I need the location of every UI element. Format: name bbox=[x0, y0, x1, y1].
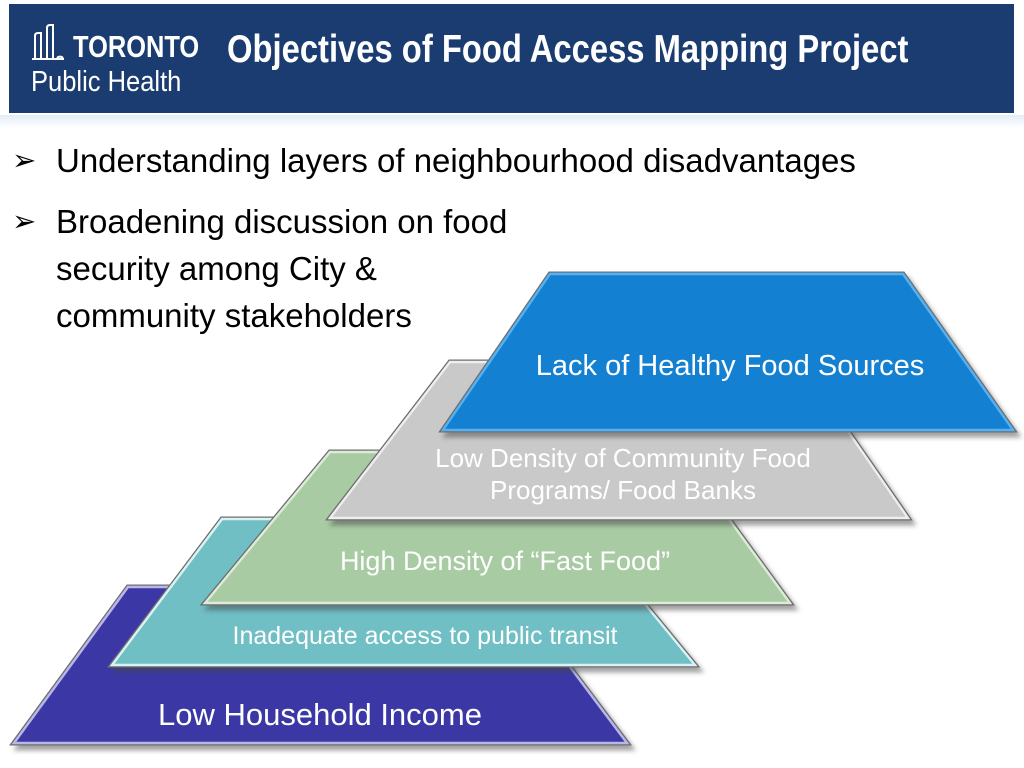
layer-label-inadequate-access-transit: Inadequate access to public transit bbox=[190, 621, 660, 652]
layer-label-high-density-fast-food: High Density of “Fast Food” bbox=[285, 545, 725, 578]
slide: TORONTO Public Health Objectives of Food… bbox=[0, 0, 1024, 768]
layer-label-low-household-income: Low Household Income bbox=[120, 696, 520, 734]
layer-label-low-density-community-food: Low Density of Community Food Programs/ … bbox=[398, 443, 848, 506]
layer-label-lack-of-healthy-food-sources: Lack of Healthy Food Sources bbox=[490, 349, 970, 384]
